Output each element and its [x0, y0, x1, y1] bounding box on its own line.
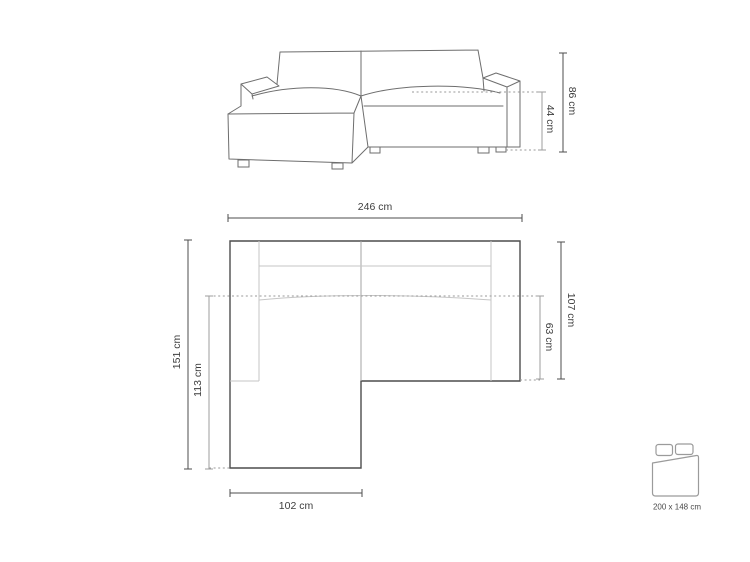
bed-mattress — [653, 455, 699, 496]
chaise-depth-line — [205, 296, 213, 469]
total-height-dimension: 86 cm — [559, 53, 578, 152]
sofa-seat-cushions — [252, 86, 500, 96]
chaise-width-line — [230, 489, 362, 497]
front-view-dimensions: 44 cm 86 cm — [412, 53, 578, 152]
sofa-chaise-body — [228, 96, 368, 163]
seat-depth-line — [536, 296, 544, 379]
seat-height-dimension: 44 cm — [538, 92, 556, 150]
sofa-right-armrest — [483, 73, 520, 147]
plan-left-armrest-seam — [230, 241, 259, 381]
top-view-dimensions: 246 cm 151 cm 113 cm 107 cm 63 cm 102 cm — [171, 201, 577, 512]
total-depth-label: 151 cm — [171, 335, 183, 370]
body-depth-dimension: 107 cm — [557, 242, 577, 379]
sofa-dimension-diagram: 44 cm 86 cm 246 cm — [0, 0, 750, 562]
body-depth-line — [557, 242, 565, 379]
seat-height-label: 44 cm — [544, 105, 556, 134]
chaise-depth-dimension: 113 cm — [192, 296, 213, 469]
chaise-width-dimension: 102 cm — [230, 489, 362, 512]
sofa-leg — [496, 147, 506, 152]
sofa-leg — [332, 163, 343, 169]
total-width-label: 246 cm — [358, 201, 393, 213]
body-depth-label: 107 cm — [565, 293, 577, 328]
total-width-line — [228, 214, 522, 222]
bed-pillow-right — [676, 444, 694, 455]
total-height-line — [559, 53, 567, 152]
front-view-sketch — [228, 50, 520, 169]
total-depth-dimension: 151 cm — [171, 240, 192, 469]
sofa-backrest-outline — [277, 50, 483, 96]
seat-depth-label: 63 cm — [543, 323, 555, 352]
sofa-leg — [238, 160, 249, 167]
diagram-canvas: 44 cm 86 cm 246 cm — [0, 0, 750, 562]
bed-icon — [653, 444, 699, 496]
plan-outline — [230, 241, 520, 468]
sofa-right-base — [364, 106, 520, 147]
total-height-label: 86 cm — [566, 87, 578, 116]
top-view-plan — [230, 241, 520, 468]
chaise-depth-label: 113 cm — [192, 363, 204, 397]
total-width-dimension: 246 cm — [228, 201, 522, 222]
bed-pillow-left — [656, 445, 673, 456]
sleeping-area-label: 200 x 148 cm — [653, 503, 701, 512]
chaise-width-label: 102 cm — [279, 500, 314, 512]
sofa-leg — [478, 147, 489, 153]
total-depth-line — [184, 240, 192, 469]
sofa-leg — [370, 147, 380, 153]
sleeping-area: 200 x 148 cm — [653, 444, 702, 512]
seat-depth-dimension: 63 cm — [536, 296, 555, 379]
